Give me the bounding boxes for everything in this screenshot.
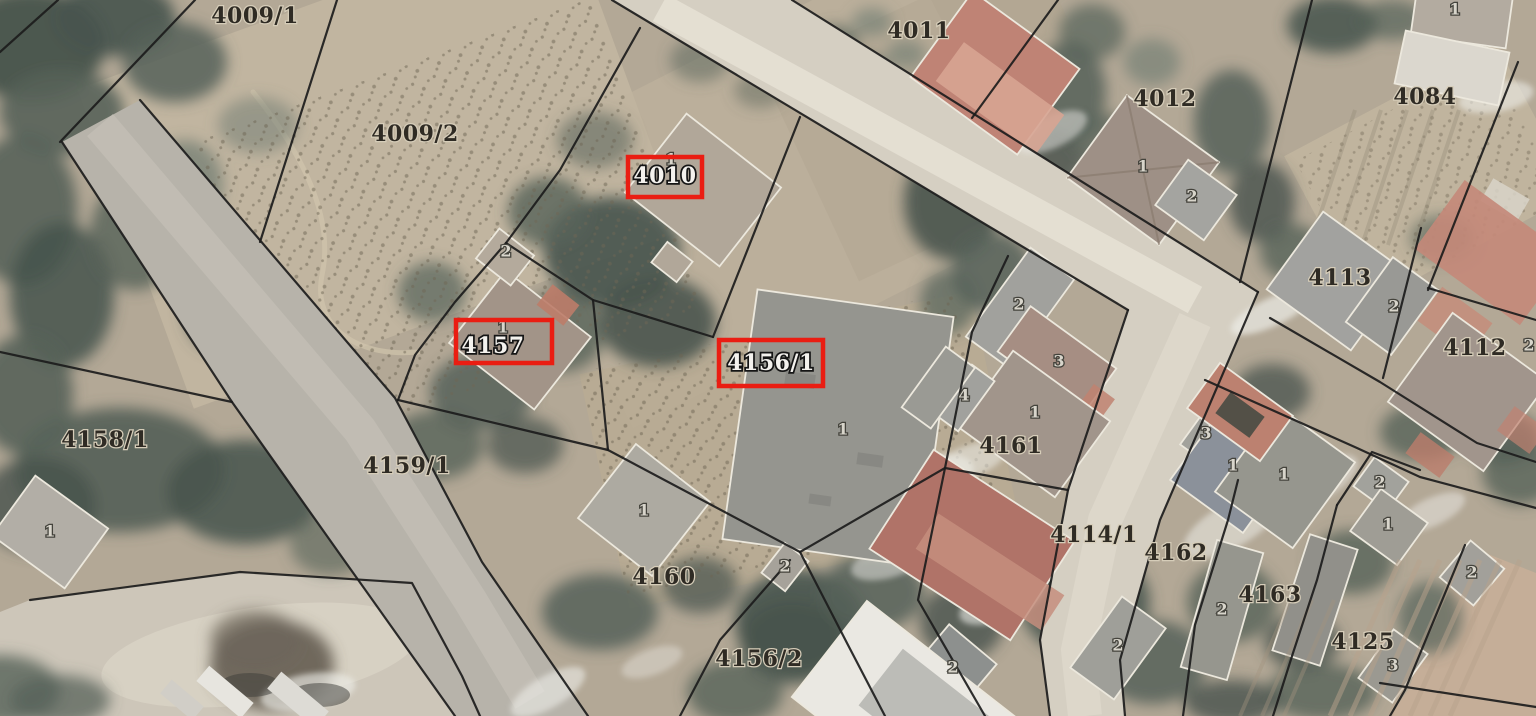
parcel-label[interactable]: 4159/1: [363, 453, 451, 479]
building-number-label: 2: [1112, 636, 1123, 655]
building-number-label: 1: [1449, 0, 1460, 19]
building-number-label: 3: [1053, 352, 1064, 371]
building-number-label: 2: [947, 658, 958, 677]
building-number-label: 1: [44, 522, 55, 541]
cadastral-map[interactable]: 121112223411222223112132114009/14009/240…: [0, 0, 1536, 716]
building-number-label: 1: [837, 420, 848, 439]
building-number-label: 2: [779, 557, 790, 576]
parcel-label[interactable]: 4163: [1238, 582, 1301, 608]
building-number-label: 1: [1227, 456, 1238, 475]
parcel-label[interactable]: 4125: [1331, 629, 1394, 655]
building-number-label: 3: [1387, 656, 1398, 675]
parcel-label[interactable]: 4156/1: [727, 350, 815, 376]
building-number-label: 1: [1382, 515, 1393, 534]
parcel-label[interactable]: 4011: [887, 18, 950, 44]
parcel-label[interactable]: 4010: [633, 163, 696, 189]
building-number-label: 2: [1216, 600, 1227, 619]
parcel-label[interactable]: 4009/1: [211, 3, 299, 29]
building-number-label: 2: [1523, 336, 1534, 355]
building-number-label: 2: [1388, 297, 1399, 316]
parcel-label[interactable]: 4113: [1308, 265, 1371, 291]
parcel-label[interactable]: 4161: [979, 433, 1042, 459]
parcel-label[interactable]: 4162: [1144, 540, 1207, 566]
building-number-label: 1: [1029, 403, 1040, 422]
building-number-label: 2: [1013, 295, 1024, 314]
parcel-label[interactable]: 4112: [1443, 335, 1506, 361]
parcel-label[interactable]: 4158/1: [61, 427, 149, 453]
parcel-label[interactable]: 4012: [1133, 86, 1196, 112]
building-number-label: 2: [1466, 563, 1477, 582]
building-number-label: 2: [1374, 473, 1385, 492]
parcel-label[interactable]: 4009/2: [371, 121, 459, 147]
building-number-label: 2: [500, 242, 511, 261]
parcel-label[interactable]: 4160: [632, 564, 695, 590]
building-number-label: 4: [958, 386, 969, 405]
parcel-label[interactable]: 4157: [461, 333, 524, 359]
parcel-label[interactable]: 4114/1: [1050, 522, 1138, 548]
building-number-label: 1: [1137, 157, 1148, 176]
building-number-label: 3: [1200, 424, 1211, 443]
building-number-label: 1: [638, 501, 649, 520]
building-number-label: 2: [1186, 187, 1197, 206]
parcel-label[interactable]: 4156/2: [715, 646, 803, 672]
building-number-label: 1: [1278, 465, 1289, 484]
parcel-label[interactable]: 4084: [1393, 84, 1456, 110]
